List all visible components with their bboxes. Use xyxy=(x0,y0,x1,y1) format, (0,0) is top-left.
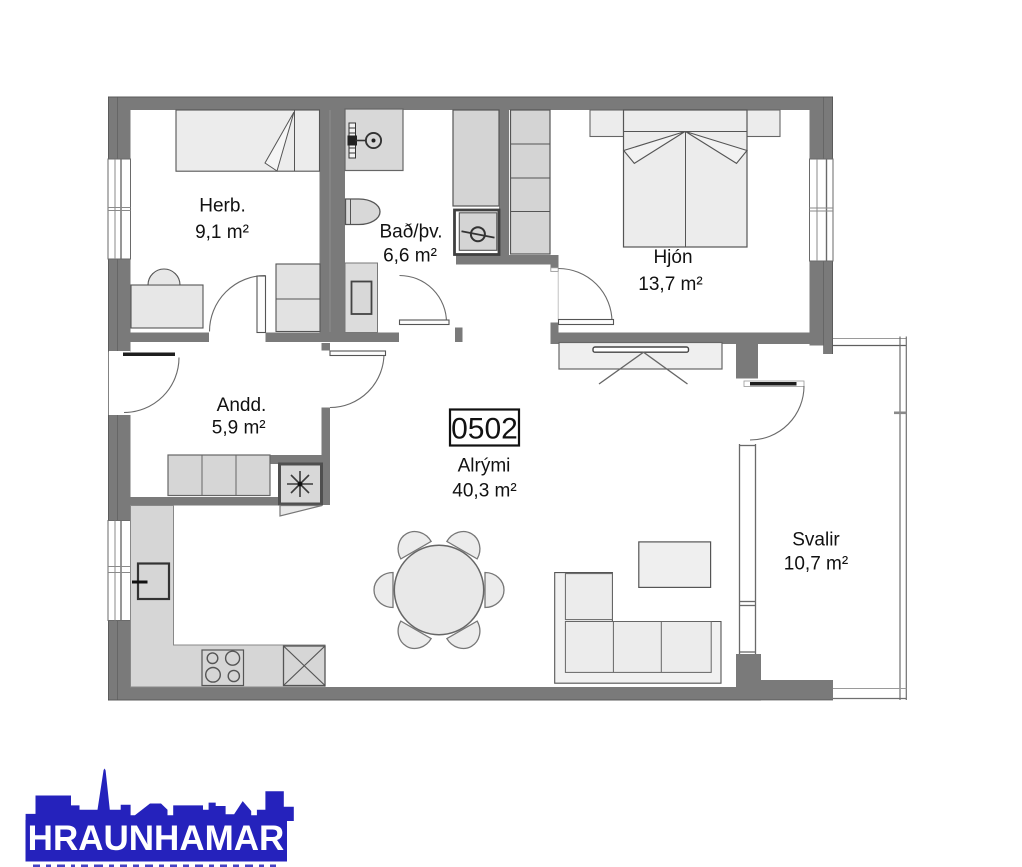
svg-text:Herb.: Herb. xyxy=(199,196,245,217)
svg-text:Andd.: Andd. xyxy=(217,395,267,416)
svg-text:HRAUNHAMAR: HRAUNHAMAR xyxy=(28,819,285,858)
svg-text:Bað/þv.: Bað/þv. xyxy=(379,222,442,243)
svg-text:10,7 m²: 10,7 m² xyxy=(784,554,848,575)
svg-text:40,3 m²: 40,3 m² xyxy=(452,481,516,502)
svg-text:13,7 m²: 13,7 m² xyxy=(638,274,702,295)
svg-text:6,6 m²: 6,6 m² xyxy=(383,246,437,267)
svg-text:5,9 m²: 5,9 m² xyxy=(212,418,266,439)
svg-text:9,1 m²: 9,1 m² xyxy=(195,222,249,243)
svg-text:0502: 0502 xyxy=(451,413,518,446)
svg-text:Svalir: Svalir xyxy=(792,530,840,551)
svg-text:Alrými: Alrými xyxy=(458,456,511,477)
svg-text:Hjón: Hjón xyxy=(653,247,692,268)
